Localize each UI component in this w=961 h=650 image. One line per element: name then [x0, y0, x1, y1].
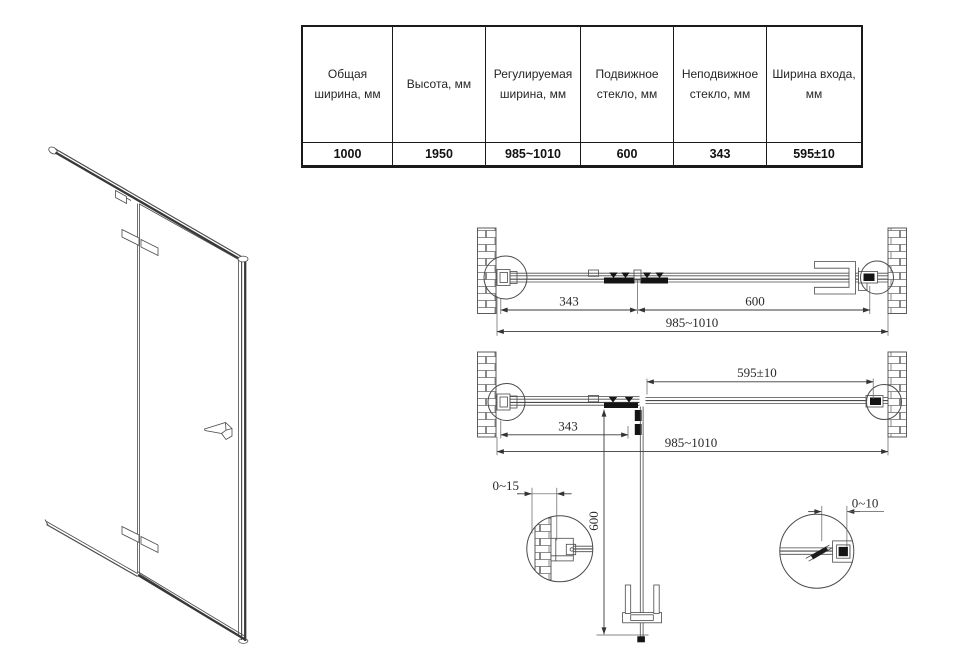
drawing-sheet: Общая ширина, мм Высота, мм Регулируемая… [0, 0, 961, 650]
technical-drawing: 343 600 985~1010 [0, 0, 961, 650]
dim-label-left-wall-adjust: 0~15 [493, 478, 520, 493]
detail-view-right-wall-mount: 0~10 [779, 496, 884, 589]
glass-panel [138, 204, 239, 637]
glass-section-lines [496, 273, 888, 282]
left-wall-profile [497, 270, 517, 286]
right-wall-hardware-open [866, 396, 883, 408]
dim-label-fixed-glass-closed: 343 [559, 294, 579, 309]
brick-wall-left [478, 228, 497, 314]
open-door-depth-dimension: 600 [586, 410, 649, 635]
center-hinge-hardware [589, 270, 669, 284]
top-view-closed: 343 600 985~1010 [478, 228, 907, 336]
dim-label-right-wall-adjust: 0~10 [852, 496, 879, 511]
brick-wall-right-open [888, 352, 907, 437]
dim-label-total-width-closed: 985~1010 [666, 315, 719, 330]
dimension-right-adjust: 0~10 [808, 496, 884, 548]
dim-label-entrance-width: 595±10 [737, 365, 777, 380]
dim-label-total-width-open: 985~1010 [665, 435, 718, 450]
isometric-door-view [45, 146, 248, 644]
door-handle-side-view [623, 585, 662, 623]
brick-wall-left-open [478, 352, 497, 437]
support-bar-lines [646, 397, 889, 403]
right-frame-post [238, 256, 248, 643]
dimensions-open: 595±10 343 985~1010 [497, 365, 888, 455]
detail-view-left-wall-profile: 0~15 [493, 478, 593, 582]
dim-label-door-glass-width: 600 [586, 511, 601, 531]
pivot-hinge-hardware [589, 396, 642, 436]
door-handle [205, 423, 233, 440]
bottom-hinge [122, 527, 158, 553]
bottom-rail [138, 572, 246, 640]
dimension-left-adjust: 0~15 [493, 478, 572, 541]
top-view-open: 595±10 343 985~1010 [478, 352, 907, 642]
dim-label-moving-glass-closed: 600 [745, 294, 765, 309]
top-hinge [122, 230, 158, 256]
brick-wall-right [888, 228, 907, 314]
dim-label-fixed-glass-open: 343 [558, 418, 578, 433]
open-door-glass [637, 407, 645, 643]
